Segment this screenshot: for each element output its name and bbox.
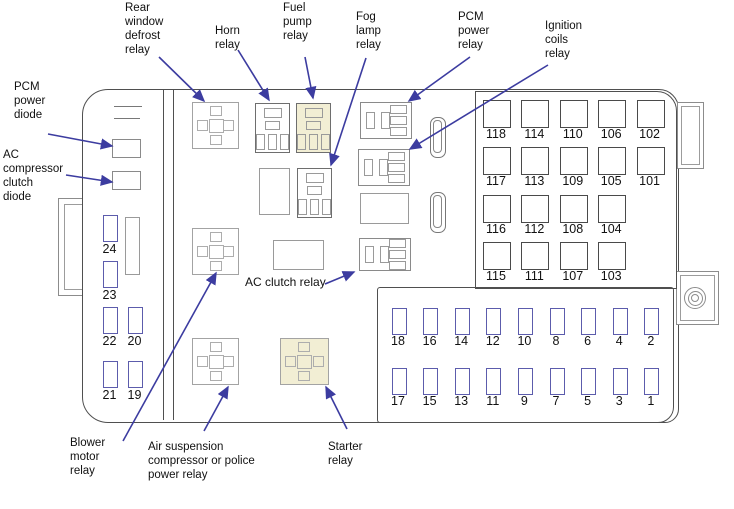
relay-pin: [210, 342, 222, 352]
fuse-slot-7: [550, 368, 565, 395]
relay-pin: [388, 163, 405, 172]
fuse-number-105: 105: [594, 175, 628, 188]
callout-starter-relay: Starter relay: [328, 440, 363, 468]
fuse-number-11: 11: [476, 395, 510, 408]
relay-pin: [380, 246, 389, 263]
relay-pin: [210, 261, 222, 271]
fuse-number-109: 109: [556, 175, 590, 188]
fuse-slot-10: [518, 308, 533, 335]
empty-slot-1: [259, 168, 290, 215]
fuse-slot-21: [103, 361, 118, 388]
right-top-mount-tab-inner: [681, 106, 700, 165]
fuse-slot-112: [521, 195, 549, 223]
fuse-slot-116: [483, 195, 511, 223]
callout-ac-clutch-relay: AC clutch relay: [245, 275, 326, 289]
fuse-number-4: 4: [602, 335, 636, 348]
fuse-slot-118: [483, 100, 511, 128]
relay-pin: [280, 134, 289, 150]
fuse-number-24: 24: [93, 243, 127, 256]
fuse-slot-105: [598, 147, 626, 175]
relay-pin: [209, 119, 224, 133]
fuse-slot-110: [560, 100, 588, 128]
relay-pin: [197, 356, 208, 367]
fuse-slot-115: [483, 242, 511, 270]
fuse-slot-106: [598, 100, 626, 128]
relay-pin: [389, 239, 406, 248]
divider-line-2: [173, 90, 174, 420]
relay-pin: [379, 159, 388, 176]
relay-pin: [268, 134, 277, 150]
callout-air-suspension-relay: Air suspension compressor or police powe…: [148, 440, 255, 482]
relay-pin: [321, 134, 330, 150]
callout-fog-lamp-relay: Fog lamp relay: [356, 10, 381, 52]
fuse-slot-22: [103, 307, 118, 334]
fuse-slot-13: [455, 368, 470, 395]
fuse-number-6: 6: [571, 335, 605, 348]
relay-ignition-coils: [358, 149, 410, 186]
fuse-slot-5: [581, 368, 596, 395]
fuse-slot-3: [613, 368, 628, 395]
fuse-number-13: 13: [444, 395, 478, 408]
fuse-slot-14: [455, 308, 470, 335]
fuse-number-8: 8: [539, 335, 573, 348]
fuse-slot-8: [550, 308, 565, 335]
callout-blower-motor-relay: Blower motor relay: [70, 436, 105, 478]
relay-pin: [256, 134, 289, 150]
relay-pin: [389, 261, 406, 270]
fuse-number-101: 101: [633, 175, 667, 188]
callout-pcm-power-diode: PCM power diode: [14, 80, 45, 122]
fuse-slot-9: [518, 368, 533, 395]
relay-pin: [264, 108, 282, 118]
relay-pin: [307, 186, 322, 195]
fuse-slot-23: [103, 261, 118, 288]
relay-pin: [310, 199, 319, 215]
relay-rear-window-defrost: [192, 102, 239, 149]
empty-slot-3: [360, 193, 409, 224]
fuse-slot-24: [103, 215, 118, 242]
fuse-number-108: 108: [556, 223, 590, 236]
fuse-slot-113: [521, 147, 549, 175]
pill-connector-2: [430, 192, 446, 233]
relay-pin: [388, 174, 405, 183]
relay-pin: [381, 112, 390, 129]
fuse-number-5: 5: [571, 395, 605, 408]
relay-pin: [306, 173, 324, 183]
relay-pin: [265, 121, 280, 130]
relay-pin: [388, 152, 405, 161]
fuse-number-10: 10: [507, 335, 541, 348]
relay-pin: [210, 106, 222, 116]
fuse-slot-18: [392, 308, 407, 335]
relay-pin: [366, 112, 390, 129]
relay-pin: [285, 356, 296, 367]
fuse-slot-4: [613, 308, 628, 335]
fuse-number-104: 104: [594, 223, 628, 236]
fuse-number-14: 14: [444, 335, 478, 348]
relay-horn: [255, 103, 290, 153]
relay-blower-motor: [192, 228, 239, 275]
fuse-number-1: 1: [634, 395, 668, 408]
fuse-number-18: 18: [381, 335, 415, 348]
fuse-number-110: 110: [556, 128, 590, 141]
relay-pin: [209, 355, 224, 369]
relay-pin: [364, 159, 388, 176]
relay-pin: [297, 134, 306, 150]
relay-pin: [223, 120, 234, 131]
relay-pin: [364, 159, 373, 176]
fuse-slot-15: [423, 368, 438, 395]
fuse-slot-114: [521, 100, 549, 128]
diode-pcm-power: [112, 139, 141, 158]
relay-pin: [390, 127, 407, 136]
bolt-icon-center: [691, 294, 699, 302]
divider-line-1: [163, 90, 164, 420]
relay-pin: [298, 199, 331, 215]
relay-pin: [433, 195, 442, 228]
fuse-number-2: 2: [634, 335, 668, 348]
fuse-slot-108: [560, 195, 588, 223]
fuse-slot-17: [392, 368, 407, 395]
relay-pin: [389, 250, 406, 259]
fuse-number-112: 112: [517, 223, 551, 236]
diode-ac-clutch: [112, 171, 141, 190]
relay-pin: [209, 245, 224, 259]
relay-pin: [390, 116, 407, 125]
fuse-number-115: 115: [479, 270, 513, 283]
relay-pin: [297, 355, 312, 369]
fuse-slot-103: [598, 242, 626, 270]
relay-pin: [197, 246, 208, 257]
relay-pin: [322, 199, 331, 215]
fuse-number-3: 3: [602, 395, 636, 408]
empty-slot-2: [273, 240, 324, 270]
fuse-slot-1: [644, 368, 659, 395]
relay-pin: [390, 105, 407, 136]
fuse-number-20: 20: [118, 335, 152, 348]
fuse-slot-2: [644, 308, 659, 335]
relay-air-suspension: [192, 338, 239, 385]
relay-pin: [305, 108, 323, 118]
fuse-slot-11: [486, 368, 501, 395]
fuse-number-16: 16: [413, 335, 447, 348]
fuse-number-116: 116: [479, 223, 513, 236]
bus-line-1: [114, 106, 142, 107]
relay-starter: [280, 338, 329, 385]
fuse-slot-111: [521, 242, 549, 270]
relay-pin: [309, 134, 318, 150]
fuse-slot-19: [128, 361, 143, 388]
fuse-slot-102: [637, 100, 665, 128]
fuse-slot-20: [128, 307, 143, 334]
callout-ignition-coils-relay: Ignition coils relay: [545, 19, 582, 61]
pill-connector-1: [430, 117, 446, 158]
relay-pin: [388, 152, 405, 183]
relay-pin: [390, 105, 407, 114]
callout-ac-compressor-clutch-diode: AC compressor clutch diode: [3, 148, 63, 204]
relay-pin: [298, 199, 307, 215]
callout-rear-window-defrost-relay: Rear window defrost relay: [125, 1, 163, 57]
fuse-number-7: 7: [539, 395, 573, 408]
relay-pin: [223, 356, 234, 367]
fuse-slot-109: [560, 147, 588, 175]
fuse-number-17: 17: [381, 395, 415, 408]
relay-pin: [298, 342, 310, 352]
fuse-number-15: 15: [413, 395, 447, 408]
bus-line-2: [114, 118, 140, 119]
relay-pin: [197, 120, 208, 131]
fuse-number-12: 12: [476, 335, 510, 348]
fuse-number-106: 106: [594, 128, 628, 141]
fuse-slot-16: [423, 308, 438, 335]
relay-pin: [389, 239, 406, 270]
relay-ac-clutch: [359, 238, 411, 271]
fuse-slot-12: [486, 308, 501, 335]
relay-pcm-power: [360, 102, 412, 139]
relay-pin: [210, 232, 222, 242]
relay-pin: [210, 135, 222, 145]
fuse-slot-104: [598, 195, 626, 223]
left-slot-rect: [125, 217, 140, 275]
callout-pcm-power-relay: PCM power relay: [458, 10, 489, 52]
fuse-number-23: 23: [93, 289, 127, 302]
relay-pin: [223, 246, 234, 257]
fuse-slot-101: [637, 147, 665, 175]
relay-pin: [297, 134, 330, 150]
fuse-slot-117: [483, 147, 511, 175]
callout-fuel-pump-relay: Fuel pump relay: [283, 1, 312, 43]
fuse-number-107: 107: [556, 270, 590, 283]
relay-fog-lamp: [297, 168, 332, 218]
fuse-slot-107: [560, 242, 588, 270]
fuse-number-117: 117: [479, 175, 513, 188]
fuse-number-113: 113: [517, 175, 551, 188]
relay-pin: [256, 134, 265, 150]
relay-pin: [306, 121, 321, 130]
callout-horn-relay: Horn relay: [215, 24, 240, 52]
fuse-number-9: 9: [507, 395, 541, 408]
relay-pin: [298, 371, 310, 381]
fuse-number-118: 118: [479, 128, 513, 141]
fuse-slot-6: [581, 308, 596, 335]
relay-pin: [365, 246, 389, 263]
fuse-number-111: 111: [517, 270, 551, 283]
fuse-number-103: 103: [594, 270, 628, 283]
relay-pin: [433, 120, 442, 153]
relay-pin: [313, 356, 324, 367]
relay-pin: [365, 246, 374, 263]
fuse-number-19: 19: [118, 389, 152, 402]
relay-pin: [210, 371, 222, 381]
relay-pin: [366, 112, 375, 129]
relay-fuel-pump: [296, 103, 331, 153]
fuse-number-102: 102: [633, 128, 667, 141]
fuse-box-diagram: PCM power diode AC compressor clutch dio…: [0, 0, 734, 509]
fuse-number-114: 114: [517, 128, 551, 141]
